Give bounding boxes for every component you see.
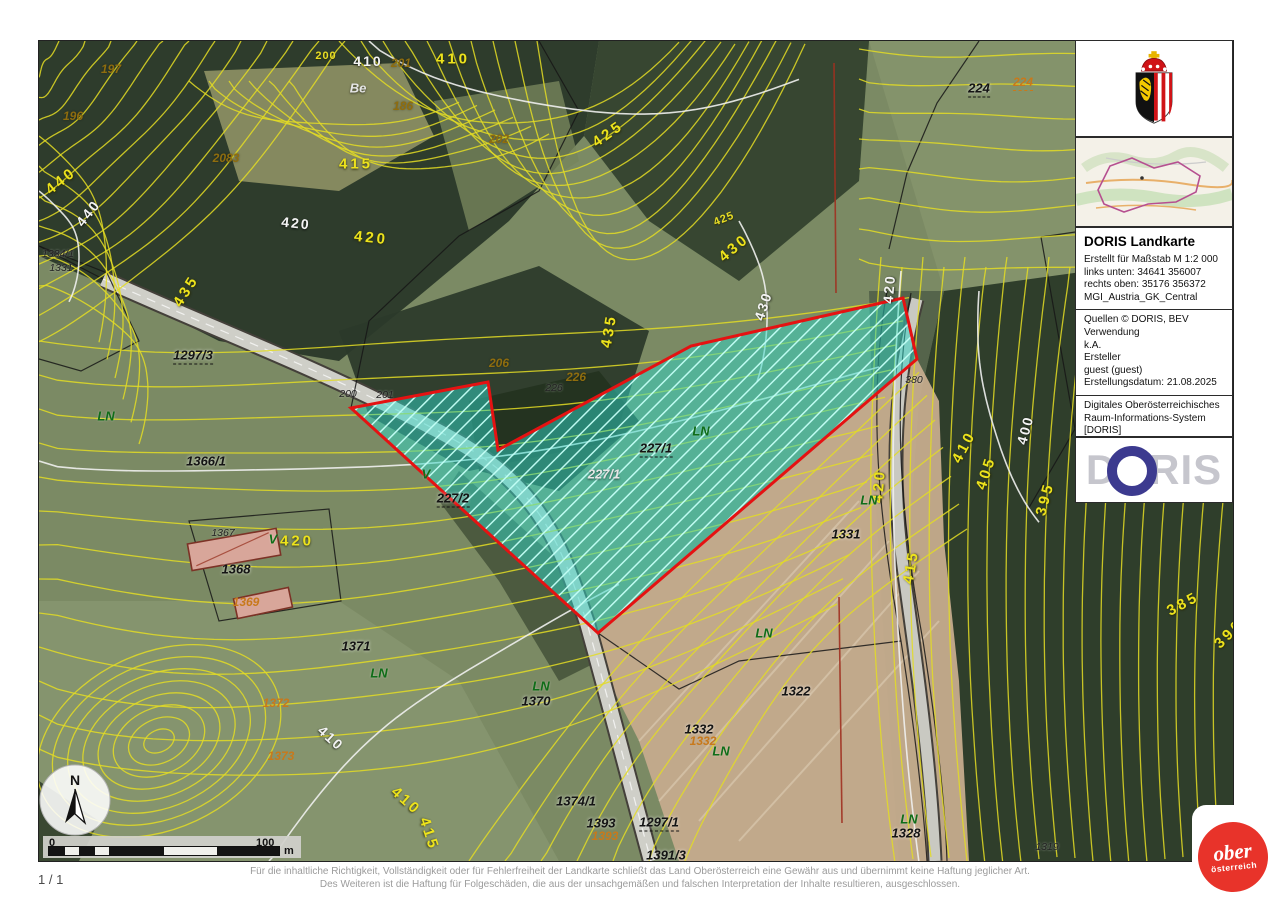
map-label: 1366/1: [186, 454, 226, 469]
map-label: 1374/1: [556, 794, 596, 809]
map-label: 197: [101, 62, 121, 76]
disclaimer-line-1: Für die inhaltliche Richtigkeit, Vollstä…: [0, 866, 1280, 877]
map-label: 385: [1164, 589, 1202, 620]
map-label: LN: [755, 626, 772, 641]
map-label: 224: [968, 81, 990, 98]
info-line: guest (guest): [1084, 365, 1224, 378]
disclaimer-line-2: Des Weiteren ist die Haftung für Folgesc…: [0, 879, 1280, 890]
doris-map-export-page: 197196200410201410Be18620220834404404154…: [0, 0, 1280, 912]
info-line: rechts oben: 35176 356372: [1084, 279, 1224, 292]
doris-logo-box: D RIS: [1075, 437, 1233, 503]
info-line: Erstellungsdatum: 21.08.2025: [1084, 377, 1224, 390]
map-label: 410: [388, 783, 425, 818]
info-section-source: Quellen © DORIS, BEVVerwendungk.A.Erstel…: [1076, 309, 1232, 395]
map-label: 410: [353, 53, 382, 69]
map-info-panel: DORIS Landkarte Erstellt für Maßstab M 1…: [1075, 227, 1233, 437]
info-line: Digitales Oberösterreichisches: [1084, 400, 1224, 413]
info-line: Verwendung: [1084, 327, 1224, 340]
overview-map-thumbnail: [1076, 138, 1232, 226]
map-label: 1331: [49, 262, 72, 274]
map-label: 425: [712, 209, 736, 228]
map-label: V: [269, 532, 278, 547]
info-line: MGI_Austria_GK_Central: [1084, 292, 1224, 305]
map-label: 1391/3: [646, 848, 686, 863]
overview-map-box: [1075, 137, 1233, 227]
map-label: 410: [436, 51, 470, 68]
map-label: 1319: [1035, 841, 1058, 853]
map-label: 420: [880, 274, 898, 305]
coat-of-arms-box: [1075, 40, 1233, 137]
map-label: 227/2: [437, 491, 470, 508]
scale-bar: 0 100 m: [43, 836, 301, 858]
map-label: 440: [73, 197, 104, 230]
map-label: Be: [350, 81, 367, 96]
map-label: 420: [281, 214, 312, 233]
map-label: 425: [589, 117, 627, 150]
north-arrow: N: [39, 764, 111, 836]
map-label: 420: [353, 228, 389, 248]
info-line: Erstellt für Maßstab M 1:2 000: [1084, 254, 1224, 267]
scale-unit: m: [284, 845, 294, 857]
map-label: 1369: [233, 595, 260, 609]
map-label: LN: [712, 744, 729, 759]
map-label: 415: [416, 815, 443, 853]
map-label: 430: [751, 290, 775, 323]
map-label: 430: [716, 231, 753, 266]
land-ooe-logo-box: ober österreich: [1192, 805, 1280, 912]
map-label: 226: [566, 370, 586, 384]
source-lines: Quellen © DORIS, BEVVerwendungk.A.Erstel…: [1084, 314, 1224, 390]
map-label: 390: [1211, 616, 1234, 652]
upper-austria-crest-icon: [1127, 50, 1181, 128]
map-canvas: 197196200410201410Be18620220834404404154…: [38, 40, 1234, 862]
map-label: LN: [532, 679, 549, 694]
meta-lines: Erstellt für Maßstab M 1:2 000links unte…: [1084, 254, 1224, 304]
map-label: 201: [391, 56, 411, 70]
map-label: 1297/1: [639, 815, 679, 832]
map-label: 1367: [211, 527, 234, 539]
map-label: V: [422, 467, 431, 482]
map-label: LN: [860, 493, 877, 508]
map-label: 410: [315, 722, 348, 754]
map-label: 1371: [342, 639, 371, 654]
map-label: 1331: [832, 527, 861, 542]
map-label: 420: [280, 533, 314, 550]
map-label: 1393: [592, 829, 619, 843]
map-label: 2083: [213, 151, 240, 165]
info-line: Raum-Informations-System [DORIS]: [1084, 413, 1224, 438]
map-label: 410: [949, 428, 980, 466]
map-label: 405: [973, 454, 1000, 492]
map-label: LN: [692, 424, 709, 439]
map-label: 395: [1032, 480, 1057, 517]
map-label: 186: [393, 99, 413, 113]
map-label: LN: [370, 666, 387, 681]
map-label: 206: [489, 356, 509, 370]
map-label: 224: [1013, 75, 1033, 91]
map-label: 1297/3: [173, 348, 213, 365]
map-label: 415: [339, 156, 373, 173]
map-label: 400: [1013, 414, 1036, 447]
info-line: Ersteller: [1084, 352, 1224, 365]
map-label: 1368: [222, 562, 251, 577]
map-label: 200: [315, 50, 336, 62]
map-label: 227/1: [588, 467, 621, 482]
map-label: 1328: [892, 826, 921, 841]
map-label: LN: [900, 812, 917, 827]
info-line: k.A.: [1084, 340, 1224, 353]
info-line: links unten: 34641 356007: [1084, 267, 1224, 280]
map-label: 440: [42, 164, 79, 198]
panel-title: DORIS Landkarte: [1084, 234, 1224, 249]
land-ooe-logo-icon: ober österreich: [1195, 819, 1272, 896]
north-label: N: [70, 772, 80, 788]
map-label: 201: [376, 389, 394, 401]
map-label: 202: [489, 132, 509, 146]
map-label: 226: [545, 382, 563, 394]
map-label: 1334/1: [42, 248, 74, 260]
info-section-meta: DORIS Landkarte Erstellt für Maßstab M 1…: [1076, 228, 1232, 309]
map-label: 1322: [782, 684, 811, 699]
map-label: 435: [598, 313, 621, 349]
doris-logo: D RIS: [1086, 445, 1222, 495]
map-label: 196: [63, 109, 83, 123]
map-label: 200: [339, 388, 357, 400]
map-label: 435: [170, 272, 202, 310]
map-label: 1373: [268, 749, 295, 763]
doris-logo-ris: RIS: [1149, 449, 1222, 491]
map-label: 1372: [263, 696, 290, 710]
info-line: Quellen © DORIS, BEV: [1084, 314, 1224, 327]
map-label: 1370: [522, 694, 551, 709]
map-label: 415: [900, 549, 923, 585]
doris-logo-ring-icon: [1107, 446, 1157, 496]
map-label: LN: [97, 409, 114, 424]
scale-bar-segments: [49, 847, 279, 855]
map-label: 227/1: [640, 441, 673, 458]
map-labels-layer: 197196200410201410Be18620220834404404154…: [39, 41, 1233, 861]
map-label: 380: [905, 374, 923, 386]
